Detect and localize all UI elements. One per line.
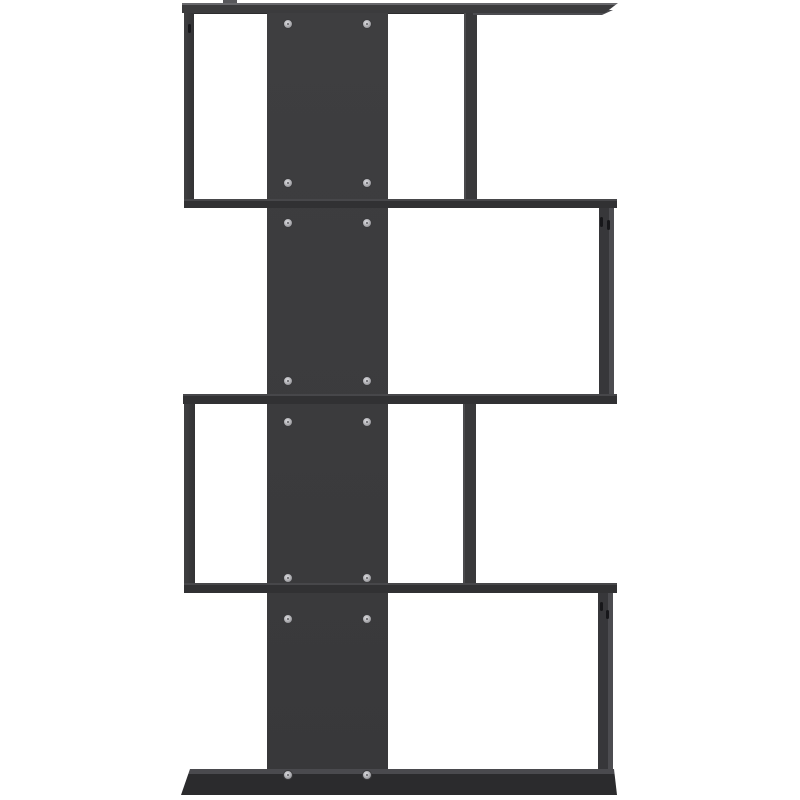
screw	[283, 614, 293, 624]
screw	[283, 178, 293, 188]
screw	[362, 376, 372, 386]
screw	[283, 770, 293, 780]
base-plinth	[181, 769, 617, 795]
shelf-1	[184, 199, 617, 208]
cam-lock-hole	[600, 602, 603, 611]
screw	[283, 19, 293, 29]
divider-tier3	[463, 400, 476, 583]
left-wall-tier1	[184, 8, 194, 208]
top-panel	[182, 3, 618, 13]
cam-lock-hole	[188, 24, 191, 33]
cam-lock-hole	[607, 220, 610, 230]
screw	[283, 417, 293, 427]
screw	[283, 218, 293, 228]
divider-tier1	[464, 8, 477, 202]
screw	[362, 218, 372, 228]
left-wall-tier3	[184, 395, 195, 593]
screw	[362, 417, 372, 427]
screw	[362, 614, 372, 624]
cam-lock-hole	[600, 217, 603, 227]
shelf-2	[183, 394, 617, 404]
screw	[362, 178, 372, 188]
screw	[283, 376, 293, 386]
screw	[362, 770, 372, 780]
shelf-3	[184, 583, 617, 593]
zigzag-bookshelf-photo	[0, 0, 800, 800]
screw	[283, 573, 293, 583]
cam-lock-hole	[606, 610, 609, 619]
right-wall-tier2	[599, 201, 614, 404]
screw	[362, 573, 372, 583]
screw	[362, 19, 372, 29]
